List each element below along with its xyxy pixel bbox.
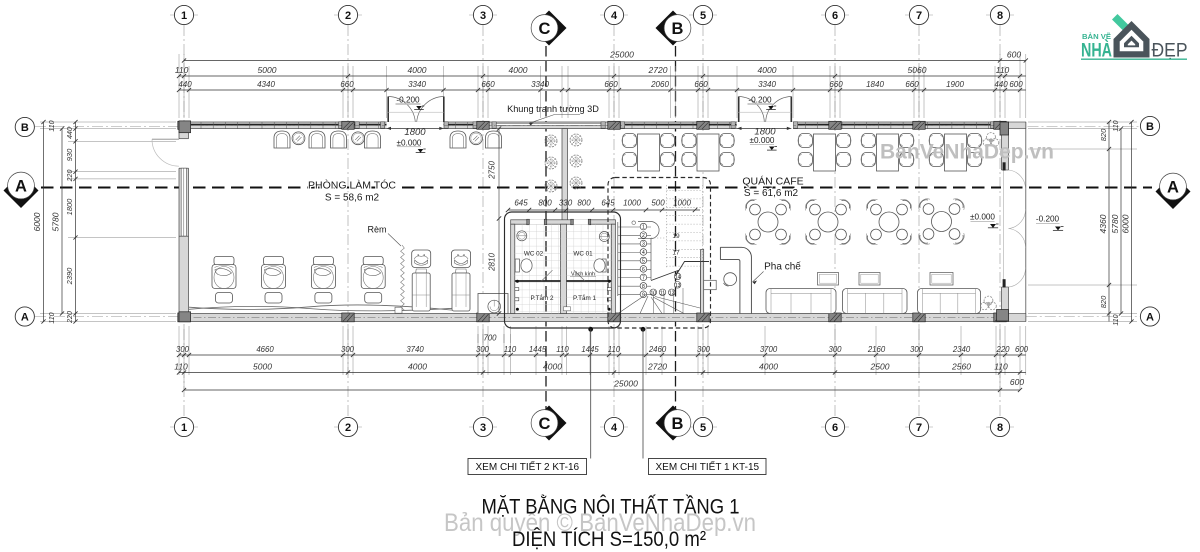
- svg-text:6000: 6000: [1121, 214, 1131, 233]
- svg-text:2: 2: [642, 233, 645, 239]
- svg-text:110: 110: [608, 345, 621, 354]
- svg-text:2390: 2390: [65, 267, 74, 286]
- svg-text:2: 2: [345, 10, 351, 22]
- svg-text:600: 600: [1009, 80, 1023, 89]
- svg-text:B: B: [21, 122, 29, 134]
- svg-text:BanVeNhaDep.vn: BanVeNhaDep.vn: [880, 141, 1054, 164]
- svg-text:5: 5: [700, 422, 706, 434]
- svg-text:800: 800: [538, 199, 552, 208]
- svg-text:P.Tắm 1: P.Tắm 1: [573, 293, 596, 302]
- svg-text:6: 6: [832, 10, 838, 22]
- svg-text:820: 820: [1099, 295, 1108, 308]
- svg-text:330: 330: [559, 199, 573, 208]
- svg-text:4000: 4000: [759, 361, 778, 371]
- svg-text:A: A: [1167, 178, 1179, 196]
- svg-text:110: 110: [994, 361, 1008, 371]
- svg-text:110: 110: [175, 65, 189, 75]
- svg-text:4000: 4000: [543, 361, 562, 371]
- svg-text:800: 800: [577, 199, 591, 208]
- svg-text:300: 300: [910, 345, 924, 354]
- svg-text:1800: 1800: [65, 198, 74, 216]
- svg-text:110: 110: [174, 361, 188, 371]
- svg-text:110: 110: [49, 312, 56, 323]
- svg-text:S = 61,6 m2: S = 61,6 m2: [744, 188, 799, 199]
- svg-text:P.Tắm 2: P.Tắm 2: [531, 293, 554, 302]
- svg-text:1900: 1900: [946, 80, 964, 89]
- svg-text:660: 660: [694, 80, 708, 89]
- svg-text:ĐẸP: ĐẸP: [1152, 40, 1188, 62]
- svg-text:2160: 2160: [867, 345, 886, 354]
- svg-text:7: 7: [916, 422, 922, 434]
- svg-text:660: 660: [481, 80, 495, 89]
- svg-text:110: 110: [556, 345, 569, 354]
- svg-text:WC 02: WC 02: [524, 251, 544, 258]
- svg-text:300: 300: [828, 345, 842, 354]
- svg-text:Pha chế: Pha chế: [764, 260, 801, 272]
- svg-text:12: 12: [669, 290, 675, 296]
- svg-text:4340: 4340: [257, 80, 275, 89]
- svg-text:1000: 1000: [623, 199, 641, 208]
- svg-text:A: A: [15, 177, 27, 195]
- svg-text:4: 4: [611, 422, 618, 434]
- svg-text:440: 440: [994, 80, 1008, 89]
- svg-text:3340: 3340: [408, 80, 426, 89]
- svg-text:A: A: [21, 312, 29, 324]
- svg-text:25000: 25000: [609, 50, 634, 60]
- svg-text:2750: 2750: [488, 161, 497, 180]
- svg-text:645: 645: [514, 199, 528, 208]
- svg-text:4000: 4000: [758, 65, 777, 75]
- svg-text:600: 600: [1010, 377, 1024, 387]
- svg-text:PHÒNG LÀM TÓC: PHÒNG LÀM TÓC: [308, 179, 396, 192]
- svg-text:220: 220: [995, 345, 1010, 354]
- svg-text:5780: 5780: [1110, 214, 1120, 233]
- svg-text:2810: 2810: [488, 253, 497, 272]
- svg-text:600: 600: [1015, 345, 1029, 354]
- svg-text:6: 6: [642, 267, 645, 273]
- svg-text:XEM CHI TIẾT 2 KT-16: XEM CHI TIẾT 2 KT-16: [476, 460, 580, 473]
- svg-text:8: 8: [997, 10, 1003, 22]
- svg-text:1800: 1800: [404, 127, 426, 138]
- svg-text:110: 110: [1113, 120, 1120, 131]
- svg-text:25000: 25000: [613, 379, 638, 389]
- svg-text:3740: 3740: [406, 345, 424, 354]
- svg-text:B: B: [672, 20, 684, 38]
- svg-text:440: 440: [67, 127, 74, 139]
- svg-text:2060: 2060: [650, 80, 669, 89]
- svg-text:-0.200: -0.200: [1036, 215, 1060, 224]
- svg-text:2720: 2720: [647, 361, 667, 371]
- svg-text:4360: 4360: [1098, 214, 1108, 233]
- svg-text:4000: 4000: [509, 65, 528, 75]
- svg-text:1000: 1000: [673, 199, 691, 208]
- svg-text:110: 110: [504, 345, 517, 354]
- svg-text:6: 6: [832, 422, 838, 434]
- svg-text:660: 660: [905, 80, 919, 89]
- svg-text:XEM CHI TIẾT 1 KT-15: XEM CHI TIẾT 1 KT-15: [656, 460, 760, 473]
- svg-text:4000: 4000: [408, 361, 427, 371]
- svg-text:C: C: [539, 20, 551, 38]
- svg-text:300: 300: [176, 345, 190, 354]
- svg-text:±0.000: ±0.000: [397, 138, 422, 147]
- svg-text:500: 500: [651, 199, 665, 208]
- svg-text:440: 440: [178, 80, 192, 89]
- svg-text:QUÁN CAFE: QUÁN CAFE: [742, 175, 803, 188]
- svg-text:3340: 3340: [758, 80, 776, 89]
- svg-text:660: 660: [340, 80, 354, 89]
- svg-text:300: 300: [476, 345, 490, 354]
- svg-text:1: 1: [181, 422, 187, 434]
- svg-text:2460: 2460: [648, 345, 667, 354]
- svg-text:2720: 2720: [648, 65, 668, 75]
- svg-text:±0.000: ±0.000: [750, 136, 775, 145]
- svg-text:5780: 5780: [51, 212, 61, 231]
- svg-text:600: 600: [1007, 50, 1021, 60]
- svg-text:3700: 3700: [760, 345, 778, 354]
- svg-text:NHÀ: NHÀ: [1081, 39, 1112, 62]
- svg-text:3340: 3340: [531, 80, 549, 89]
- svg-text:S = 58,6 m2: S = 58,6 m2: [325, 193, 380, 204]
- svg-text:5: 5: [642, 259, 645, 265]
- svg-text:B: B: [672, 415, 684, 433]
- svg-text:MẶT BẰNG NỘI THẤT TẦNG 1: MẶT BẰNG NỘI THẤT TẦNG 1: [482, 494, 740, 519]
- svg-text:17: 17: [672, 250, 680, 257]
- svg-text:WC 01: WC 01: [573, 251, 593, 258]
- svg-text:645: 645: [601, 199, 615, 208]
- svg-text:DIỆN TÍCH S=150,0 m²: DIỆN TÍCH S=150,0 m²: [512, 526, 706, 551]
- svg-text:3: 3: [480, 422, 486, 434]
- svg-text:1: 1: [181, 10, 187, 22]
- svg-text:Khung tranh tường 3D: Khung tranh tường 3D: [507, 104, 599, 114]
- svg-text:5060: 5060: [908, 65, 927, 75]
- svg-text:-0.200: -0.200: [396, 96, 420, 105]
- svg-text:110: 110: [49, 120, 56, 131]
- svg-text:B: B: [1146, 121, 1154, 133]
- svg-text:220: 220: [67, 170, 74, 183]
- svg-text:19: 19: [672, 233, 680, 240]
- svg-text:300: 300: [697, 345, 711, 354]
- svg-text:A: A: [1146, 312, 1154, 324]
- svg-text:660: 660: [604, 80, 618, 89]
- svg-text:11: 11: [660, 290, 665, 296]
- svg-text:6000: 6000: [32, 212, 42, 231]
- svg-text:300: 300: [341, 345, 355, 354]
- svg-text:700: 700: [483, 334, 497, 343]
- svg-text:1: 1: [642, 225, 645, 231]
- svg-text:5: 5: [700, 10, 706, 22]
- svg-text:5000: 5000: [258, 65, 277, 75]
- svg-text:7: 7: [916, 10, 922, 22]
- svg-text:13: 13: [675, 283, 681, 289]
- svg-text:2560: 2560: [951, 361, 971, 371]
- svg-text:8: 8: [997, 422, 1003, 434]
- svg-text:4: 4: [611, 10, 618, 22]
- svg-text:2: 2: [345, 422, 351, 434]
- svg-text:4000: 4000: [408, 65, 427, 75]
- svg-text:Rèm: Rèm: [367, 224, 386, 234]
- svg-text:4: 4: [642, 250, 645, 256]
- svg-text:3: 3: [642, 242, 645, 248]
- svg-text:3: 3: [480, 10, 486, 22]
- svg-text:C: C: [539, 415, 551, 433]
- svg-text:-0.200: -0.200: [748, 96, 772, 105]
- svg-text:7: 7: [642, 275, 645, 281]
- svg-text:1840: 1840: [866, 80, 884, 89]
- svg-text:2340: 2340: [952, 345, 971, 354]
- svg-text:2500: 2500: [870, 361, 890, 371]
- svg-text:820: 820: [1099, 128, 1108, 141]
- svg-text:220: 220: [67, 311, 74, 324]
- svg-text:4660: 4660: [256, 345, 274, 354]
- svg-text:5000: 5000: [253, 361, 272, 371]
- svg-text:930: 930: [65, 148, 74, 161]
- svg-text:660: 660: [829, 80, 843, 89]
- svg-text:110: 110: [1113, 314, 1120, 325]
- svg-text:1445: 1445: [529, 345, 547, 354]
- svg-text:110: 110: [996, 65, 1010, 75]
- svg-text:±0.000: ±0.000: [970, 213, 995, 222]
- svg-text:8: 8: [642, 284, 645, 290]
